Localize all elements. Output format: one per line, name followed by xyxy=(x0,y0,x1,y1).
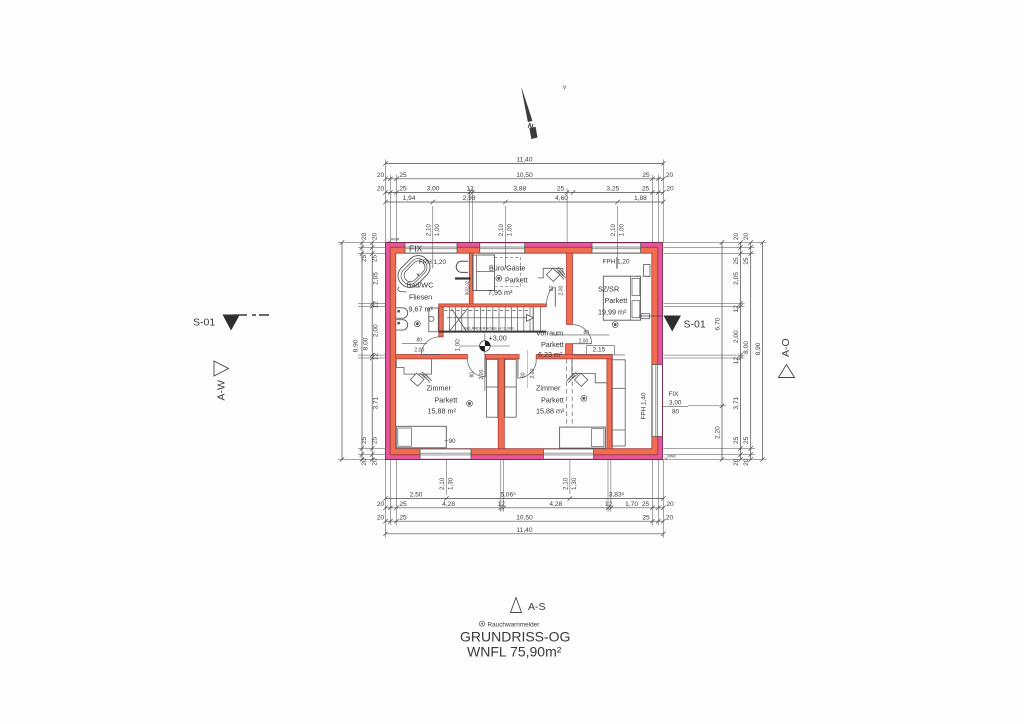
svg-text:11,40: 11,40 xyxy=(516,527,532,534)
svg-text:20: 20 xyxy=(666,501,674,508)
svg-text:2,10: 2,10 xyxy=(498,224,505,237)
svg-text:2,10: 2,10 xyxy=(610,224,617,237)
svg-text:25: 25 xyxy=(361,255,368,263)
svg-text:1,00: 1,00 xyxy=(455,339,462,352)
svg-text:2,98: 2,98 xyxy=(463,195,476,202)
svg-text:25: 25 xyxy=(642,186,650,193)
svg-text:20: 20 xyxy=(733,233,740,241)
svg-text:90: 90 xyxy=(449,438,457,445)
svg-text:9,67 m²: 9,67 m² xyxy=(409,305,434,314)
svg-text:Zimmer: Zimmer xyxy=(536,384,561,393)
svg-text:20: 20 xyxy=(666,186,674,193)
svg-text:20: 20 xyxy=(377,186,385,193)
svg-text:2,00: 2,00 xyxy=(479,370,485,380)
svg-text:25: 25 xyxy=(399,514,407,521)
svg-text:4,60: 4,60 xyxy=(555,195,568,202)
svg-text:80: 80 xyxy=(470,372,476,378)
svg-text:15,88 m²: 15,88 m² xyxy=(536,407,565,416)
svg-text:20: 20 xyxy=(377,514,385,521)
svg-text:v: v xyxy=(563,85,566,91)
svg-text:20: 20 xyxy=(372,233,379,241)
svg-text:12: 12 xyxy=(373,301,380,309)
svg-text:2,05: 2,05 xyxy=(733,272,740,285)
svg-text:2,10: 2,10 xyxy=(562,477,569,490)
svg-text:20: 20 xyxy=(377,501,385,508)
svg-text:Rauchwarnmelder: Rauchwarnmelder xyxy=(488,622,541,629)
svg-text:+3,00: +3,00 xyxy=(489,334,507,343)
svg-text:20: 20 xyxy=(743,458,750,466)
svg-text:19,99 m²: 19,99 m² xyxy=(598,308,627,317)
svg-text:S-01: S-01 xyxy=(193,317,215,329)
svg-text:20: 20 xyxy=(372,458,379,466)
svg-text:20: 20 xyxy=(361,458,368,466)
svg-text:SZ/SR: SZ/SR xyxy=(598,285,619,294)
svg-text:2,00: 2,00 xyxy=(733,330,740,343)
svg-text:20: 20 xyxy=(666,172,674,179)
svg-text:80: 80 xyxy=(549,285,555,291)
svg-text:25: 25 xyxy=(743,436,750,444)
svg-text:Fliesen: Fliesen xyxy=(409,293,432,302)
svg-text:11,40: 11,40 xyxy=(516,156,532,163)
svg-text:1,00: 1,00 xyxy=(619,224,626,237)
svg-text:3,00: 3,00 xyxy=(427,186,440,193)
svg-text:4,28: 4,28 xyxy=(442,501,455,508)
svg-text:3,83⁵: 3,83⁵ xyxy=(609,491,625,498)
svg-text:25: 25 xyxy=(361,437,368,445)
svg-text:25: 25 xyxy=(642,514,650,521)
svg-text:20: 20 xyxy=(666,514,674,521)
svg-text:25: 25 xyxy=(399,172,407,179)
svg-text:12: 12 xyxy=(466,186,474,193)
svg-text:80: 80 xyxy=(417,338,423,344)
svg-text:3,71: 3,71 xyxy=(372,396,379,409)
svg-text:25: 25 xyxy=(733,436,740,444)
svg-text:2,00: 2,00 xyxy=(530,369,536,379)
svg-text:A-O: A-O xyxy=(780,338,792,357)
svg-text:5,06⁵: 5,06⁵ xyxy=(500,491,516,498)
svg-text:2,00: 2,00 xyxy=(372,324,379,337)
svg-text:Parkett: Parkett xyxy=(435,396,458,405)
svg-text:1,70: 1,70 xyxy=(625,501,638,508)
svg-text:Zimmer: Zimmer xyxy=(427,384,452,393)
svg-text:S-01: S-01 xyxy=(684,319,706,331)
svg-text:1,00: 1,00 xyxy=(434,224,441,237)
svg-text:Parkett: Parkett xyxy=(505,276,528,285)
svg-text:FPH 1,40: FPH 1,40 xyxy=(641,392,648,419)
svg-text:2,10: 2,10 xyxy=(439,477,446,490)
svg-text:6,70: 6,70 xyxy=(714,317,721,330)
svg-text:12: 12 xyxy=(733,357,740,365)
svg-text:8,90: 8,90 xyxy=(755,342,762,355)
svg-text:25: 25 xyxy=(399,501,407,508)
svg-text:10,50: 10,50 xyxy=(516,172,533,179)
svg-text:1,30: 1,30 xyxy=(447,477,454,490)
svg-text:3,71: 3,71 xyxy=(733,396,740,409)
svg-text:20: 20 xyxy=(361,233,368,241)
svg-text:20: 20 xyxy=(377,172,385,179)
svg-text:A-W: A-W xyxy=(216,380,228,401)
svg-text:80/2,02: 80/2,02 xyxy=(465,280,470,295)
svg-text:25: 25 xyxy=(733,257,740,265)
svg-text:2,05: 2,05 xyxy=(372,272,379,285)
svg-text:3,25: 3,25 xyxy=(606,186,619,193)
svg-text:2,00: 2,00 xyxy=(579,338,589,344)
svg-text:1,88: 1,88 xyxy=(634,195,647,202)
svg-text:25: 25 xyxy=(642,172,650,179)
svg-text:7,95 m²: 7,95 m² xyxy=(488,288,513,297)
svg-text:A-S: A-S xyxy=(528,601,546,613)
svg-text:25: 25 xyxy=(557,186,565,193)
svg-text:1,00: 1,00 xyxy=(506,224,513,237)
svg-text:Parkett: Parkett xyxy=(541,340,564,349)
svg-text:25: 25 xyxy=(642,501,650,508)
svg-text:20: 20 xyxy=(743,233,750,241)
svg-text:2,20: 2,20 xyxy=(715,426,722,439)
svg-text:25: 25 xyxy=(372,437,379,445)
svg-text:Vorraum: Vorraum xyxy=(536,329,563,338)
svg-text:12: 12 xyxy=(373,353,380,361)
svg-text:20: 20 xyxy=(733,458,740,466)
svg-text:FIX: FIX xyxy=(669,391,680,398)
svg-text:Parkett: Parkett xyxy=(605,296,628,305)
svg-text:8,00: 8,00 xyxy=(363,337,370,350)
svg-text:80: 80 xyxy=(521,372,527,378)
svg-text:1,94: 1,94 xyxy=(403,195,416,202)
svg-text:WNFL 75,90m²: WNFL 75,90m² xyxy=(467,644,562,660)
svg-text:2,00: 2,00 xyxy=(559,286,565,296)
svg-text:GRUNDRISS-OG: GRUNDRISS-OG xyxy=(460,629,570,645)
svg-text:25: 25 xyxy=(743,257,750,265)
svg-text:15,88 m²: 15,88 m² xyxy=(428,407,457,416)
svg-text:FIX: FIX xyxy=(409,244,423,254)
svg-text:Bad/WC: Bad/WC xyxy=(407,281,434,290)
svg-text:25: 25 xyxy=(372,255,379,263)
svg-text:8,90: 8,90 xyxy=(353,339,360,352)
svg-text:12: 12 xyxy=(498,501,506,508)
svg-text:10,50: 10,50 xyxy=(516,514,533,521)
svg-text:2,00: 2,00 xyxy=(415,348,425,354)
svg-text:1,30: 1,30 xyxy=(571,477,578,490)
svg-text:2,10: 2,10 xyxy=(425,224,432,237)
svg-text:Parkett: Parkett xyxy=(541,396,564,405)
svg-text:80: 80 xyxy=(672,409,680,416)
svg-text:6,23 m²: 6,23 m² xyxy=(538,350,563,359)
svg-text:4,28: 4,28 xyxy=(549,501,562,508)
svg-text:Büro/Gäste: Büro/Gäste xyxy=(489,264,525,273)
svg-text:12: 12 xyxy=(605,501,613,508)
svg-text:12: 12 xyxy=(733,305,740,313)
svg-text:8,00: 8,00 xyxy=(743,341,750,354)
svg-text:GELÄNDERHÖHE H=1,00m: GELÄNDERHÖHE H=1,00m xyxy=(464,326,516,331)
svg-text:2,15: 2,15 xyxy=(593,347,606,354)
svg-text:25: 25 xyxy=(399,186,407,193)
svg-text:3,00: 3,00 xyxy=(669,400,682,407)
svg-text:2,50: 2,50 xyxy=(410,491,423,498)
svg-text:3,88: 3,88 xyxy=(513,186,526,193)
